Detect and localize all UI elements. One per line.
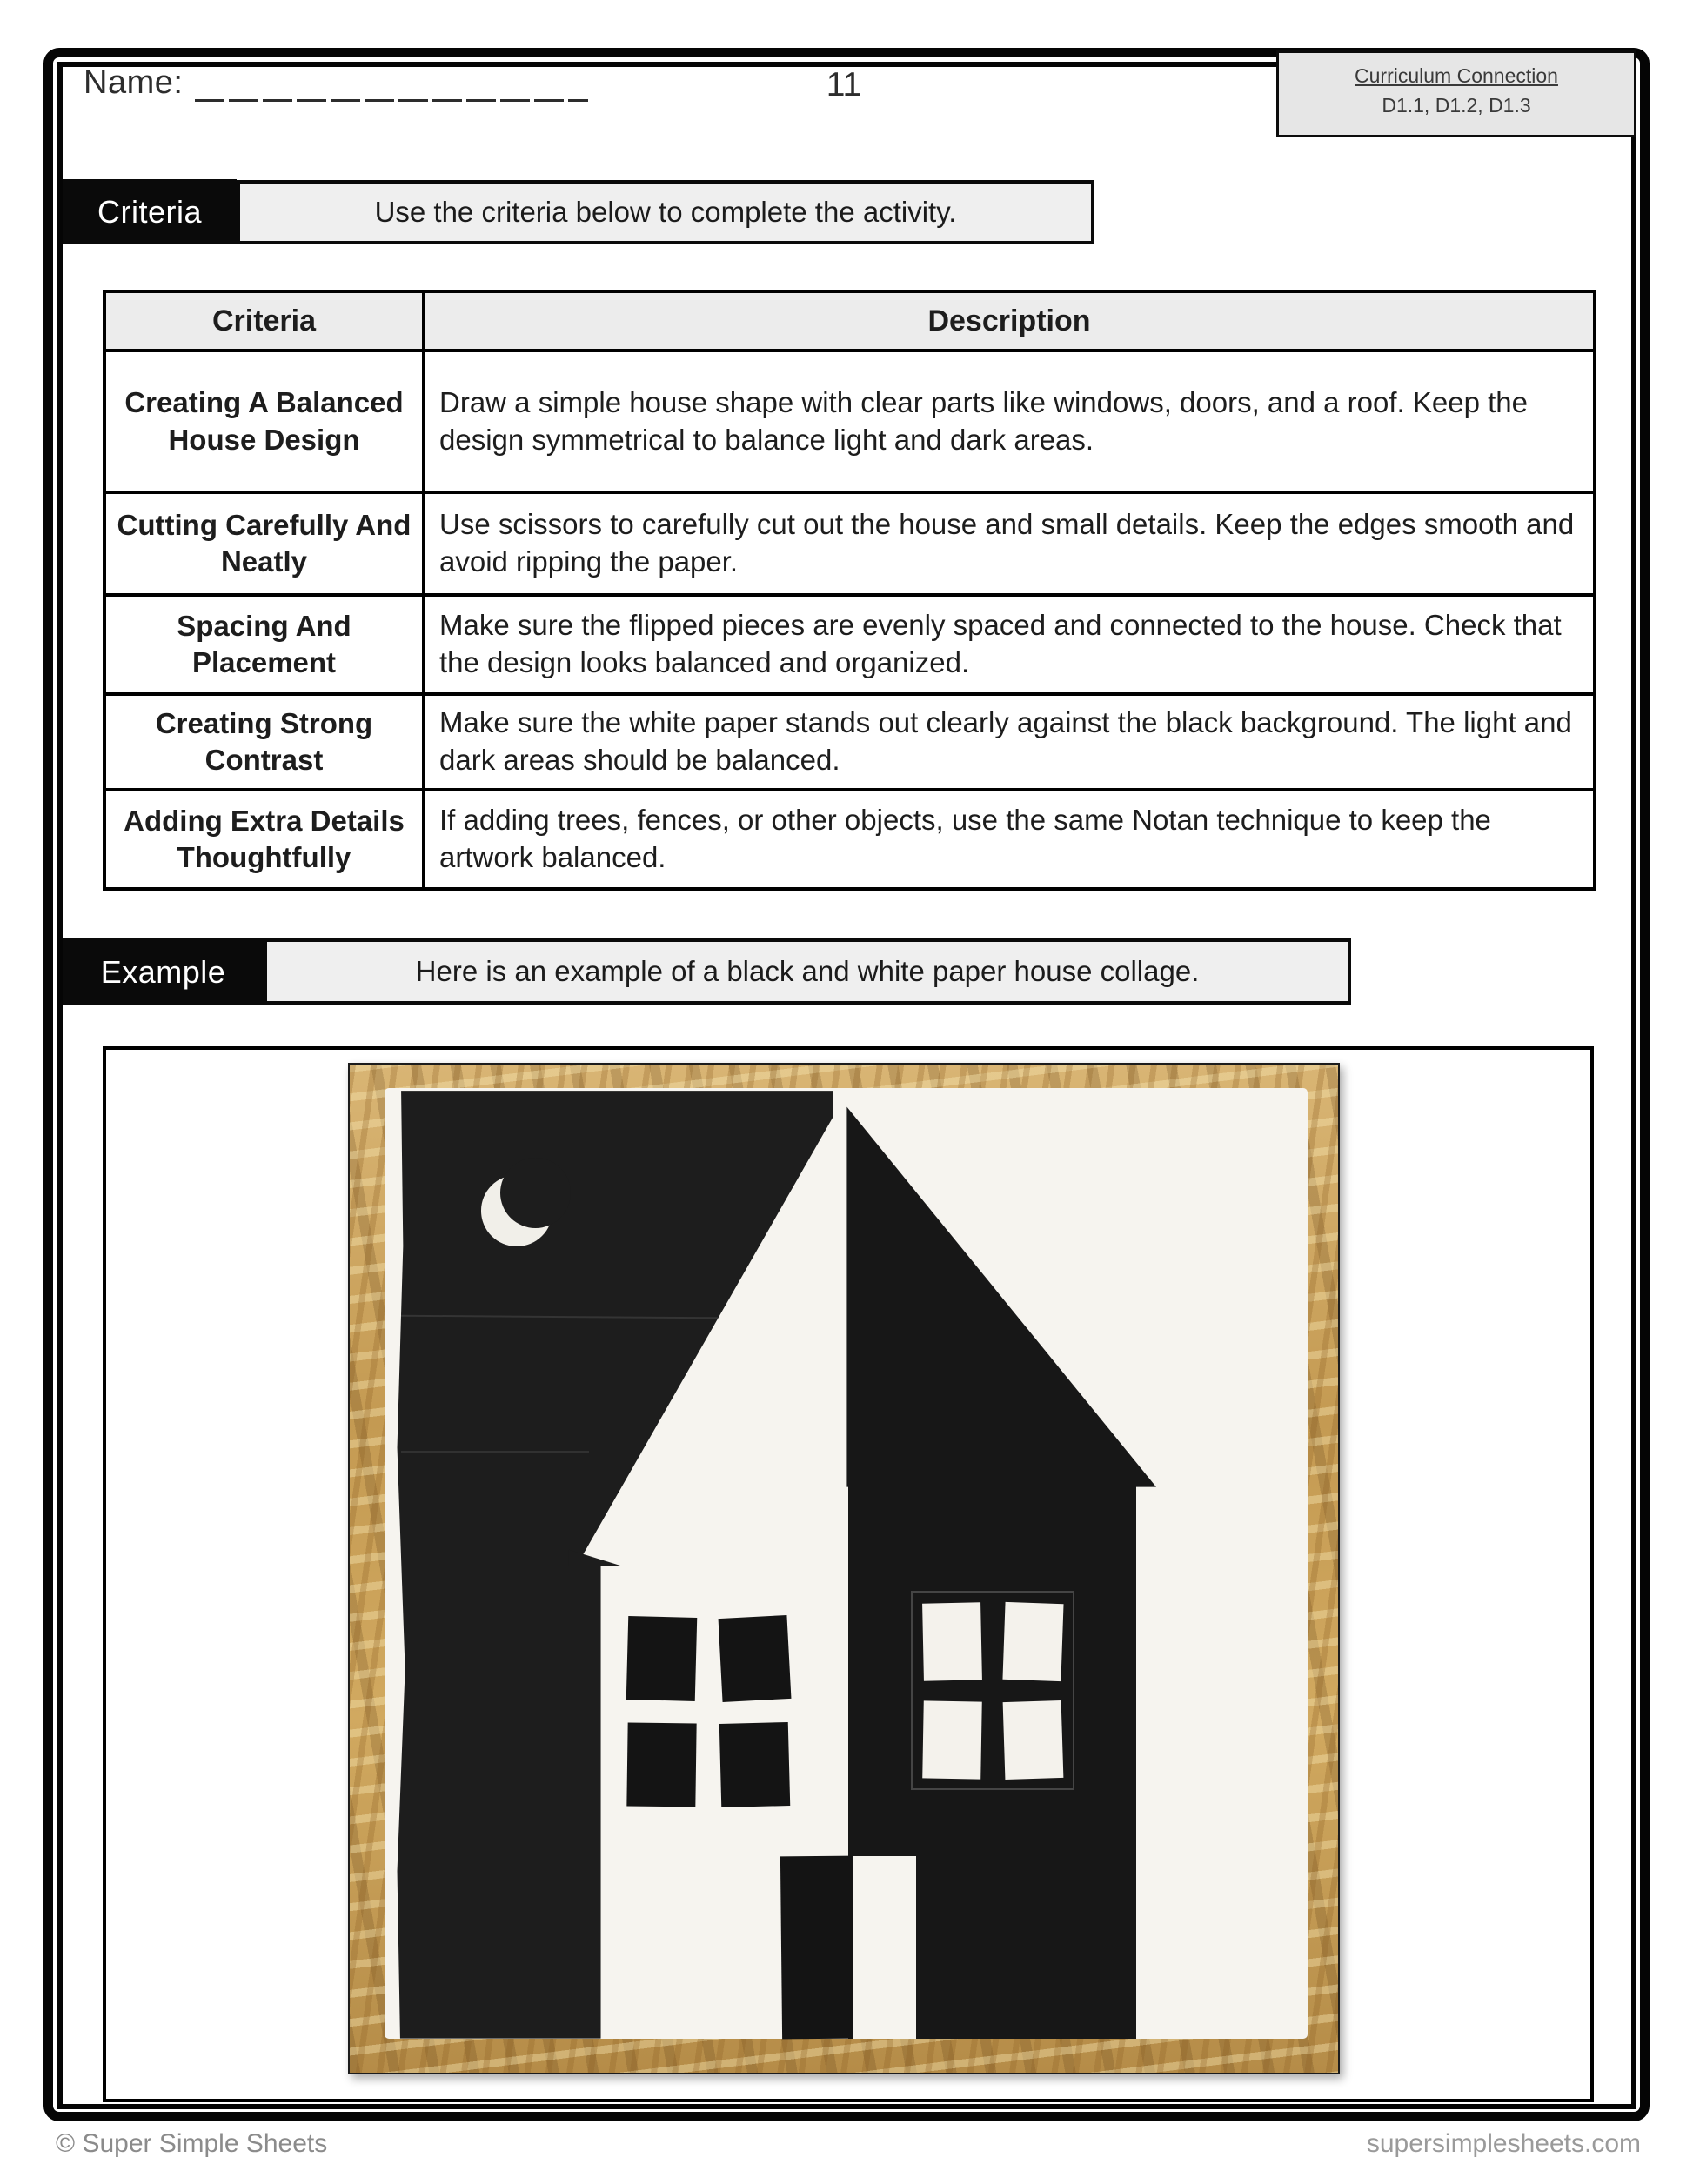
curriculum-connection-codes: D1.1, D1.2, D1.3 bbox=[1279, 94, 1634, 117]
window-pane bbox=[922, 1602, 982, 1680]
notan-collage-photo bbox=[348, 1063, 1340, 2074]
criteria-cell: Creating Strong Contrast bbox=[104, 694, 424, 790]
window-pane bbox=[627, 1723, 697, 1807]
name-row: Name: bbox=[84, 64, 588, 102]
curriculum-connection-title: Curriculum Connection bbox=[1279, 64, 1634, 88]
curriculum-connection-box: Curriculum Connection D1.1, D1.2, D1.3 bbox=[1276, 50, 1636, 137]
window-pane bbox=[718, 1615, 790, 1702]
window-pane bbox=[1002, 1602, 1063, 1681]
paper-fold-seam bbox=[401, 1451, 589, 1453]
criteria-table: Criteria Description Creating A Balanced… bbox=[103, 290, 1596, 891]
page-number: 11 bbox=[796, 66, 892, 104]
name-blank-line bbox=[195, 70, 588, 102]
name-label: Name: bbox=[84, 64, 183, 102]
left-window-black-panes bbox=[627, 1617, 788, 1807]
window-pane bbox=[719, 1722, 790, 1807]
description-cell: Draw a simple house shape with clear par… bbox=[424, 351, 1595, 492]
white-door-right-half bbox=[853, 1856, 916, 2039]
description-cell: Use scissors to carefully cut out the ho… bbox=[424, 492, 1595, 595]
example-section-label: Example bbox=[63, 938, 264, 1005]
black-door-left-half bbox=[780, 1855, 853, 2039]
example-section-instruction: Here is an example of a black and white … bbox=[264, 938, 1351, 1005]
window-pane bbox=[922, 1700, 981, 1779]
window-pane bbox=[1003, 1700, 1063, 1780]
table-row: Spacing And Placement Make sure the flip… bbox=[104, 595, 1595, 694]
footer-website: supersimplesheets.com bbox=[1367, 2129, 1641, 2159]
criteria-cell: Creating A Balanced House Design bbox=[104, 351, 424, 492]
table-row: Cutting Carefully And Neatly Use scissor… bbox=[104, 492, 1595, 595]
table-header-description: Description bbox=[424, 291, 1595, 351]
footer-copyright: © Super Simple Sheets bbox=[56, 2129, 327, 2159]
criteria-section-instruction: Use the criteria below to complete the a… bbox=[237, 180, 1094, 244]
table-header-criteria: Criteria bbox=[104, 291, 424, 351]
description-cell: If adding trees, fences, or other object… bbox=[424, 790, 1595, 889]
criteria-cell: Cutting Carefully And Neatly bbox=[104, 492, 424, 595]
table-row: Adding Extra Details Thoughtfully If add… bbox=[104, 790, 1595, 889]
right-window-white-panes bbox=[911, 1591, 1074, 1790]
description-cell: Make sure the flipped pieces are evenly … bbox=[424, 595, 1595, 694]
criteria-section-label: Criteria bbox=[63, 179, 237, 244]
criteria-cell: Spacing And Placement bbox=[104, 595, 424, 694]
window-pane bbox=[626, 1616, 697, 1701]
table-row: Creating A Balanced House Design Draw a … bbox=[104, 351, 1595, 492]
table-header-row: Criteria Description bbox=[104, 291, 1595, 351]
description-cell: Make sure the white paper stands out cle… bbox=[424, 694, 1595, 790]
table-row: Creating Strong Contrast Make sure the w… bbox=[104, 694, 1595, 790]
criteria-cell: Adding Extra Details Thoughtfully bbox=[104, 790, 424, 889]
